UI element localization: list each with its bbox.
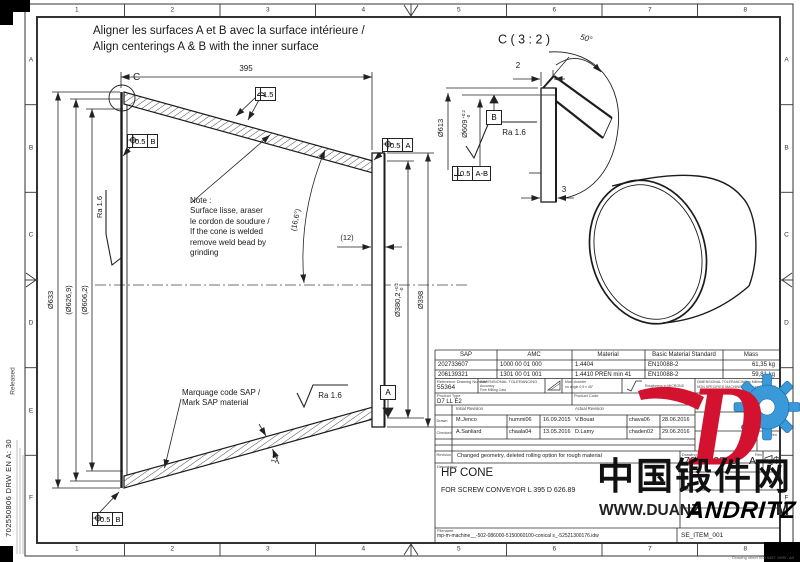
dim-dia-633: Ø633 — [47, 291, 55, 309]
dim-dia-609: Ø609+0.2-0 — [461, 110, 471, 138]
actual-drawn-date: 28.06.2016 — [662, 418, 690, 424]
dia-380-tolerance: +0.2-0 — [395, 283, 404, 291]
rev-col-label-3: Rev — [770, 433, 777, 437]
grid-col-5b: 5 — [457, 546, 461, 553]
detail-c-title: C ( 3 : 2 ) — [498, 33, 550, 46]
grid-col-3: 3 — [266, 7, 270, 14]
grid-col-3b: 3 — [266, 546, 270, 553]
revision-label: Revision — [437, 453, 452, 457]
th-mass: Mass — [744, 352, 758, 358]
alignment-instruction: Aligner les surfaces A et B avec la surf… — [93, 24, 365, 55]
th-standard: Basic Material Standard — [652, 352, 716, 358]
datum-flag-a: A — [380, 385, 396, 400]
margin-drawing-id: 702550806 DRW EN A: 30 — [5, 439, 13, 537]
cell-standard-2: EN10088-2 — [648, 372, 678, 378]
cell-material-1: 1.4404 — [575, 362, 593, 368]
grid-col-7: 7 — [648, 7, 652, 14]
grid-row-a-r: A — [784, 57, 788, 64]
ra-label-detail: Ra 1.6 — [502, 129, 526, 137]
datum-flag-b: B — [486, 110, 502, 125]
grid-row-b-r: B — [784, 145, 788, 152]
dia-609-value: Ø609 — [460, 120, 469, 138]
th-sap: SAP — [460, 352, 472, 358]
mark-line: Mark SAP material — [182, 398, 260, 408]
mark-line: Marquage code SAP / — [182, 388, 260, 398]
roughness-note: Roughness in MICRONS — [645, 385, 684, 389]
actual-revision-label: Actual Revision — [575, 407, 604, 411]
grid-row-c: C — [29, 233, 34, 240]
grid-col-2b: 2 — [170, 546, 174, 553]
grid-col-8: 8 — [743, 7, 747, 14]
th-material: Material — [597, 352, 618, 358]
note-line: grinding — [190, 248, 270, 258]
rev-col-label-1: Rev — [770, 395, 777, 399]
instruction-line-en: Align centerings A & B with the inner su… — [93, 40, 365, 56]
dim-wall-12: (12) — [340, 234, 353, 242]
andritz-logo: ANDRITZ — [686, 498, 797, 523]
fcf-position-b-top: 0.5 B — [127, 134, 158, 148]
actual-checked-name: D.Lamy — [575, 430, 594, 436]
grid-col-1: 1 — [75, 7, 79, 14]
dia-380-value: Ø380,2 — [393, 292, 402, 317]
checked-id: chaala04 — [509, 430, 531, 436]
detail-mark-c: C — [133, 73, 140, 84]
drawn-id: hummi06 — [509, 418, 532, 424]
grid-col-8b: 8 — [743, 546, 747, 553]
dim-chamfer-2: 2 — [516, 62, 520, 70]
margin-microtext — [17, 440, 23, 554]
grid-row-a: A — [29, 57, 33, 64]
weld-note: Note : Surface lisse, araser le cordon d… — [190, 196, 270, 258]
sap-mark-note: Marquage code SAP / Mark SAP material — [182, 388, 260, 409]
grid-col-5: 5 — [457, 7, 461, 14]
sheet-standard-note: Drawing sheet ISO 5457 1999 - A3 — [732, 556, 794, 560]
ra-label-bottom: Ra 1.6 — [318, 392, 342, 400]
part-title: HP CONE — [441, 467, 493, 479]
instruction-line-fr: Aligner les surfaces A et B avec la surf… — [93, 24, 365, 40]
dim-thk-3: 3 — [562, 186, 566, 194]
checked-date: 13.05.2016 — [543, 430, 571, 436]
product-code-label: Product Code — [574, 394, 598, 398]
rev-col-label-2: Rev — [770, 414, 777, 418]
dia-609-tolerance: +0.2-0 — [462, 110, 471, 118]
grid-row-f: F — [29, 496, 33, 503]
released-stamp: Released — [11, 367, 18, 394]
note-line: le cordon de soudure / — [190, 217, 270, 227]
grid-row-c-r: C — [784, 233, 789, 240]
grid-row-d: D — [29, 320, 34, 327]
th-amc: AMC — [527, 352, 540, 358]
dim-dia-606-2: (Ø606,2) — [81, 285, 89, 315]
checked-name: A.Sanliard — [456, 430, 481, 436]
product-type-value: D7 LL E2 — [437, 399, 462, 405]
item-value: SE_ITEM_001 — [681, 533, 723, 540]
cell-amc-1: 1000 00 01 000 — [500, 362, 542, 368]
cell-material-2: 1.4410 PREN min 41 — [575, 372, 631, 378]
actual-checked-id: chaden02 — [629, 430, 653, 436]
drawn-label: Drawn — [437, 419, 448, 423]
actual-checked-date: 29.06.2016 — [662, 430, 690, 436]
checked-label: Checked — [437, 431, 452, 435]
cone-3d-view — [572, 166, 756, 339]
note-line: Note : — [190, 196, 270, 206]
grid-row-e: E — [29, 408, 33, 415]
cell-amc-2: 1301 00 01 001 — [500, 372, 542, 378]
actual-drawn-id: chava06 — [629, 418, 650, 424]
actual-drawn-name: V.Bouat — [575, 418, 594, 424]
ref-drawing-value: 55364 — [437, 385, 455, 392]
chamfer-note-2: on angle 0,5 x 45° — [565, 386, 593, 390]
cell-sap-1: 202733607 — [438, 362, 468, 368]
position-datum-ref: A — [403, 139, 412, 151]
grid-col-7b: 7 — [648, 546, 652, 553]
dim-dia-626-9: (Ø626,9) — [65, 285, 73, 315]
fcf-profile-surface: 1.5 — [255, 87, 276, 101]
fcf-perpendicularity: 0.5 A-B — [452, 166, 491, 181]
part-subtitle: FOR SCREW CONVEYOR L 395 D 626.89 — [441, 487, 575, 494]
dim-dia-613: Ø613 — [437, 119, 445, 137]
grid-row-b: B — [29, 145, 33, 152]
grid-col-4: 4 — [361, 7, 365, 14]
watermark-url-left: WWW.DUANZ — [599, 503, 701, 519]
tolerancing-sub2: Fine Milling Cast — [480, 389, 506, 393]
filename-value: mp-m-machine__-502-086000-5150060100-con… — [437, 534, 599, 539]
note-line: Surface lisse, araser — [190, 206, 270, 216]
note-line: remove weld bead by — [190, 238, 270, 248]
watermark-cjk-text: 中国锻件网 — [597, 458, 792, 497]
dim-dia-380-2: Ø380,2+0.2-0 — [394, 283, 404, 317]
grid-col-4b: 4 — [361, 546, 365, 553]
revision-text: Changed geometry, deleted rolling option… — [457, 454, 602, 460]
drawn-name: M.Jenco — [456, 418, 477, 424]
position-datum-ref: B — [148, 135, 157, 147]
fcf-position-b-bottom: 0.5 B — [92, 512, 123, 526]
initial-revision-label: Initial Revision — [456, 407, 483, 411]
note-line: If the cone is welded — [190, 227, 270, 237]
drawing-sheet: 1 2 3 4 5 6 7 8 1 2 3 4 5 6 7 8 A B C D … — [0, 0, 800, 562]
grid-row-d-r: D — [784, 320, 789, 327]
ra-label-left: Ra 1.6 — [96, 196, 104, 218]
dim-length-395: 395 — [239, 65, 252, 73]
dim-dia-398: Ø398 — [417, 291, 425, 309]
grid-col-1b: 1 — [75, 546, 79, 553]
drawn-date: 16.09.2015 — [543, 418, 571, 424]
perpendicularity-datum-ref: A-B — [473, 167, 490, 180]
grid-col-6: 6 — [552, 7, 556, 14]
grid-col-2: 2 — [170, 7, 174, 14]
cell-sap-2: 206139321 — [438, 372, 468, 378]
fcf-position-a: 0.5 A — [382, 138, 413, 152]
grid-col-6b: 6 — [552, 546, 556, 553]
grid-row-e-r: E — [784, 408, 788, 415]
position-datum-ref: B — [113, 513, 122, 525]
cell-standard-1: EN10088-2 — [648, 362, 678, 368]
